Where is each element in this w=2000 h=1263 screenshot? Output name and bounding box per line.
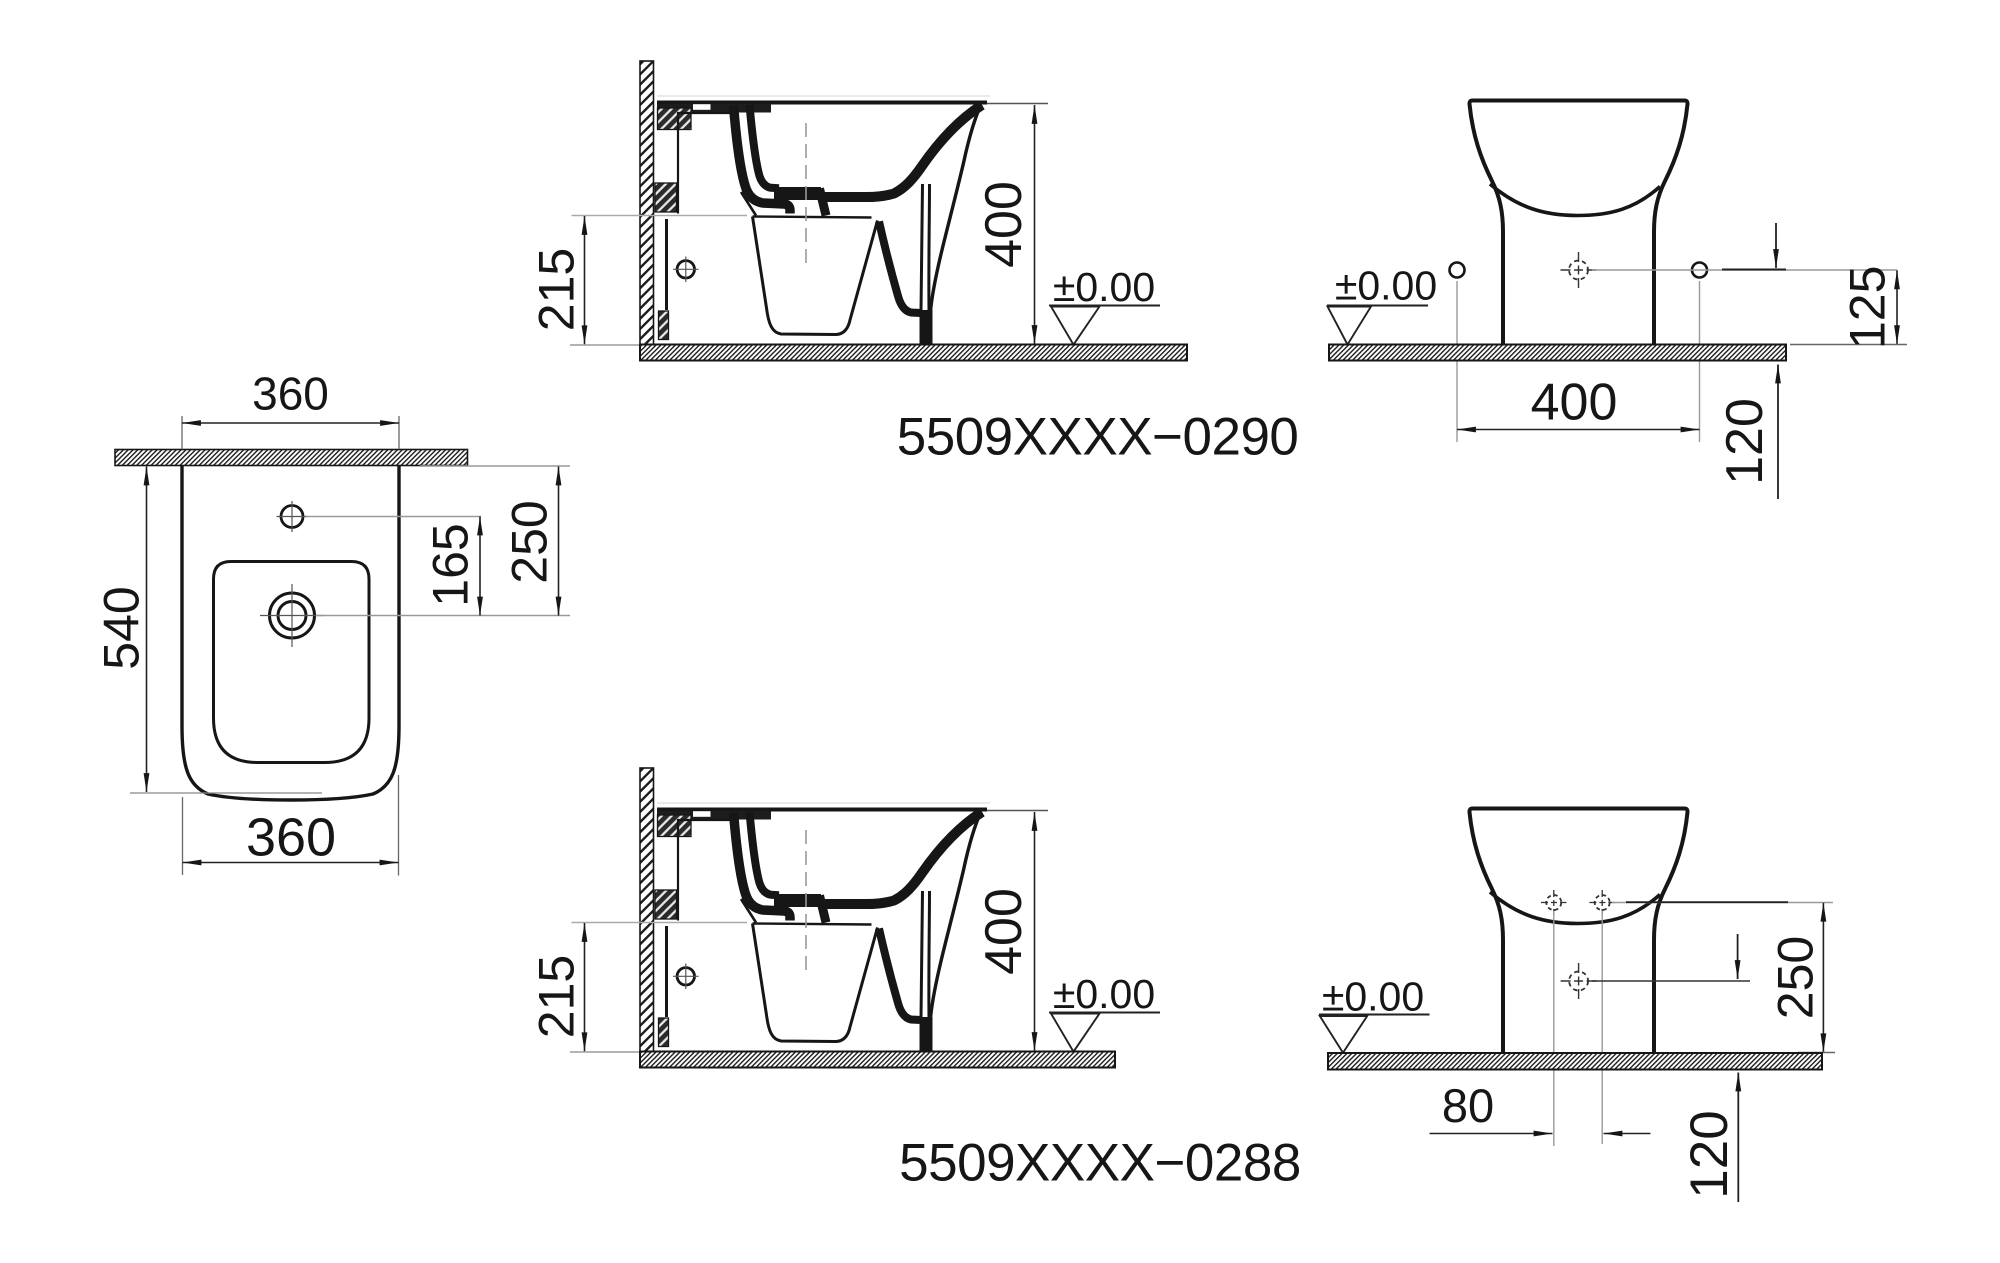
svg-text:165: 165 bbox=[423, 523, 479, 606]
svg-text:250: 250 bbox=[1768, 936, 1824, 1019]
svg-text:120: 120 bbox=[1680, 1110, 1739, 1198]
svg-text:120: 120 bbox=[1716, 398, 1774, 485]
svg-text:5509XXXX−0290: 5509XXXX−0290 bbox=[897, 408, 1299, 467]
svg-text:540: 540 bbox=[94, 586, 150, 669]
svg-text:360: 360 bbox=[246, 808, 336, 868]
svg-text:5509XXXX−0288: 5509XXXX−0288 bbox=[899, 1134, 1301, 1193]
svg-text:400: 400 bbox=[1531, 374, 1618, 432]
svg-text:360: 360 bbox=[252, 368, 329, 420]
svg-text:80: 80 bbox=[1442, 1079, 1494, 1132]
svg-text:±0.00: ±0.00 bbox=[1335, 263, 1437, 309]
svg-text:250: 250 bbox=[502, 500, 558, 583]
svg-text:±0.00: ±0.00 bbox=[1322, 974, 1424, 1020]
svg-text:125: 125 bbox=[1840, 266, 1896, 349]
